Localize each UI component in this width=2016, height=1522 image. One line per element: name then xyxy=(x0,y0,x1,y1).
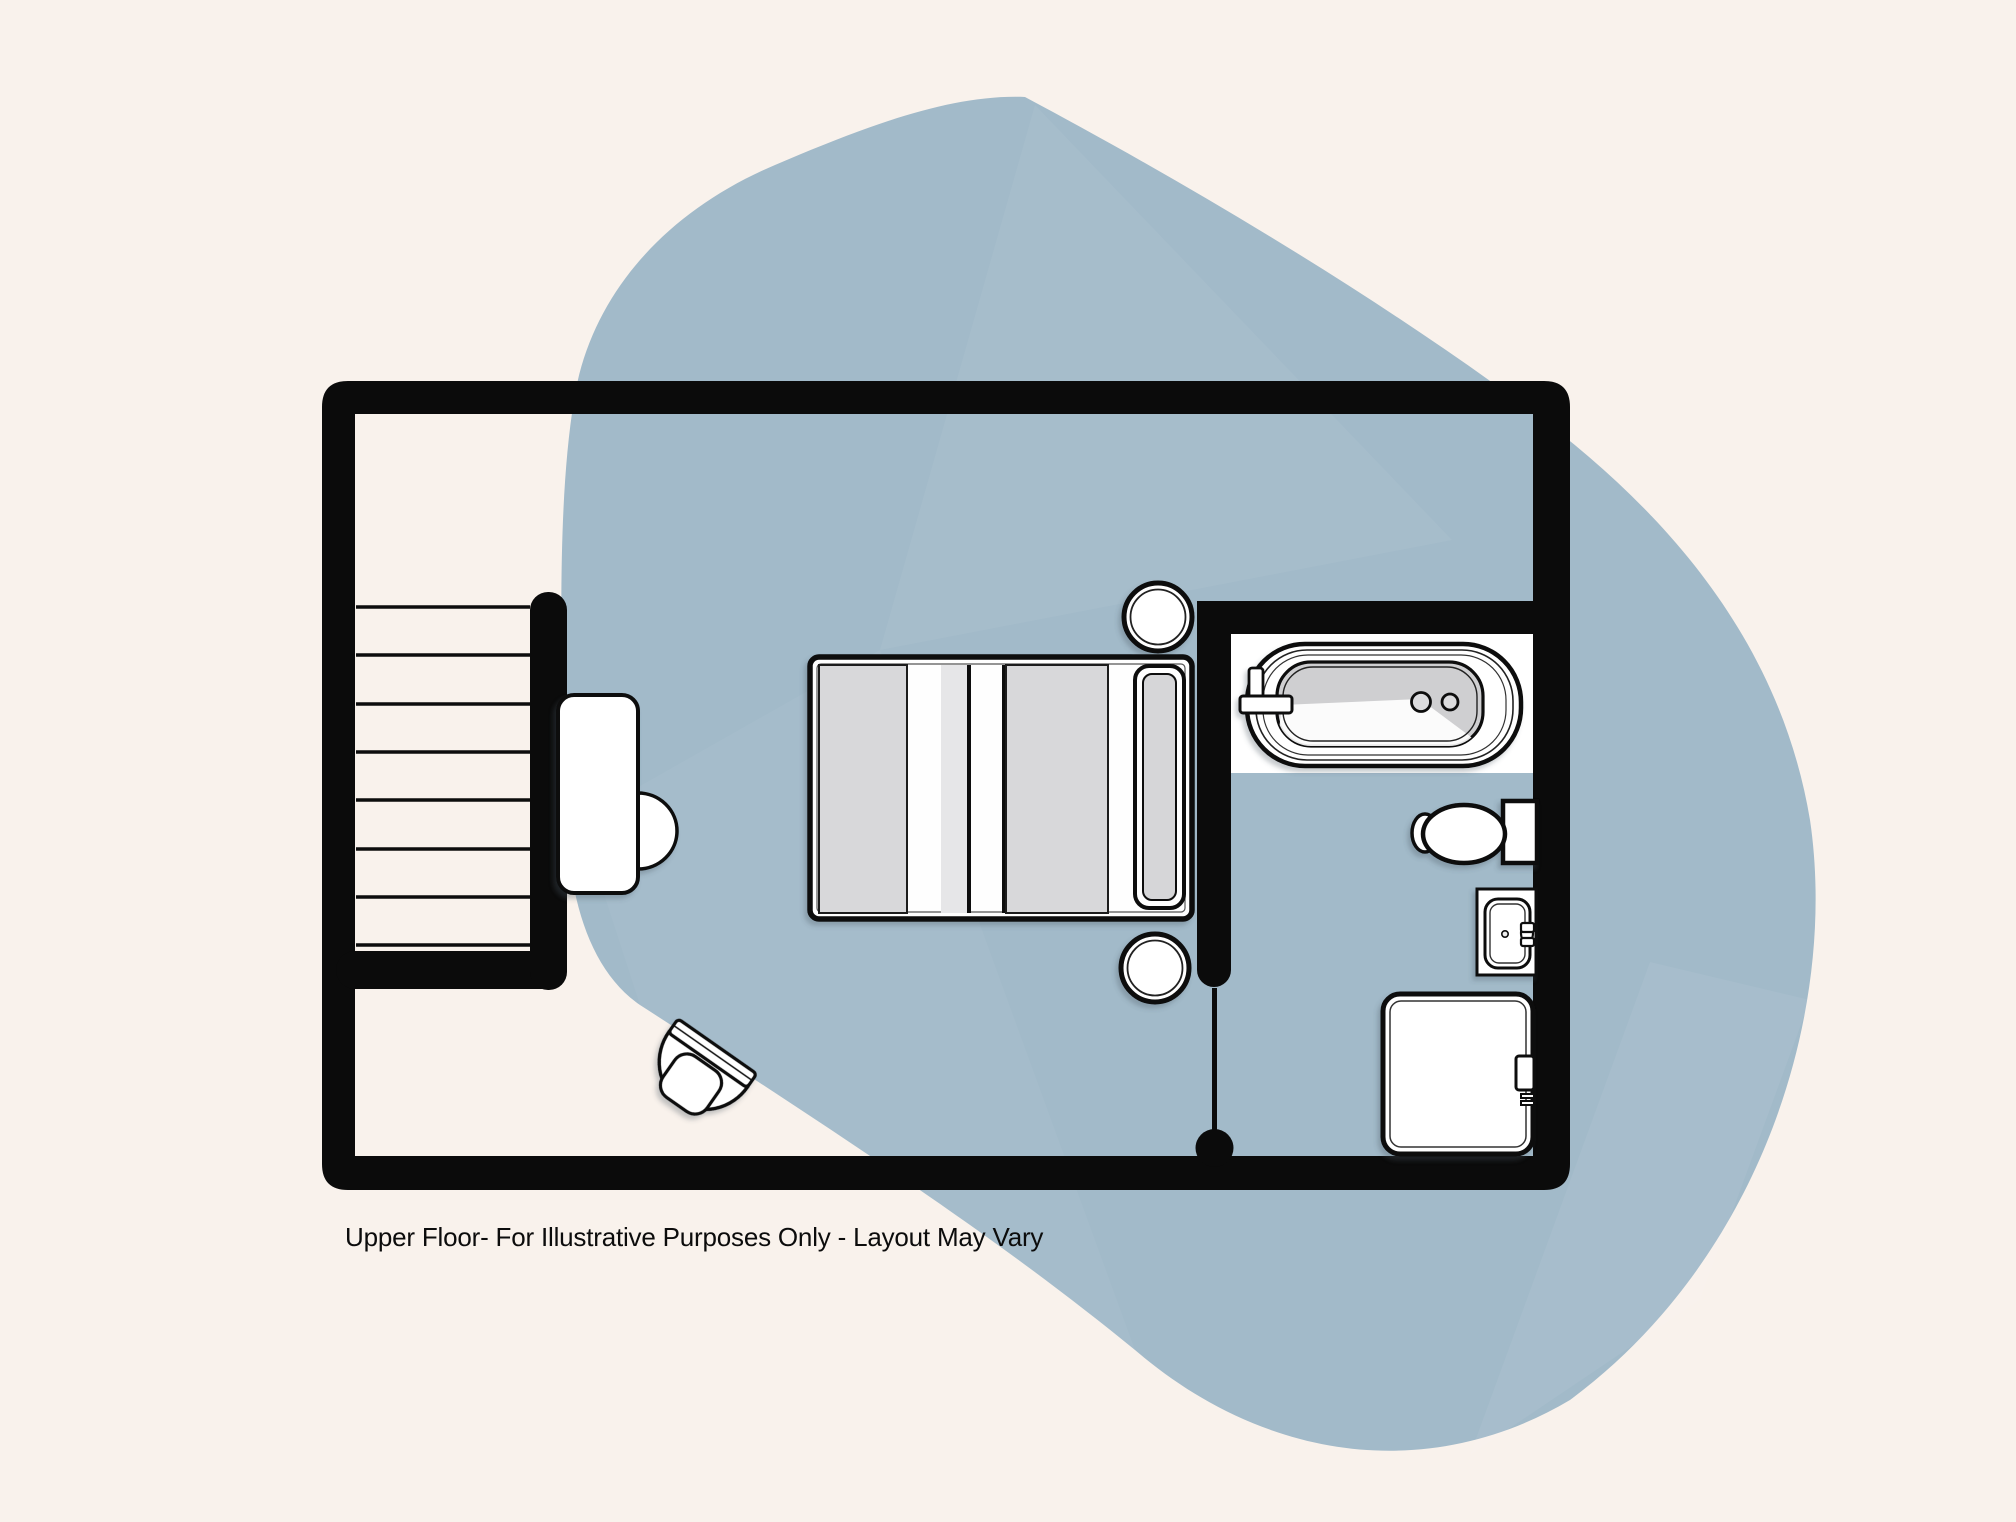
floorplan-drawing xyxy=(0,0,2016,1522)
nightstand-top xyxy=(1124,583,1192,651)
toilet-tank xyxy=(1503,801,1537,863)
bed-duvet-right xyxy=(1006,665,1108,913)
sink-drain xyxy=(1502,931,1508,937)
bathtub-drain xyxy=(1412,693,1431,712)
bathroom-top-wall xyxy=(1197,601,1537,634)
nightstand-bottom xyxy=(1121,934,1189,1002)
bathtub xyxy=(1240,644,1521,766)
toilet-bowl xyxy=(1423,805,1505,863)
shower-valve xyxy=(1516,1056,1534,1090)
bed-sheet-band xyxy=(941,665,969,913)
staircase xyxy=(356,607,530,945)
shower xyxy=(1383,994,1534,1154)
double-bed xyxy=(810,657,1192,919)
desk xyxy=(558,695,638,893)
bathroom-door-line xyxy=(1212,988,1217,1140)
bathroom-side-wall xyxy=(1197,601,1231,987)
floorplan-page: Upper Floor- For Illustrative Purposes O… xyxy=(0,0,2016,1522)
plan-caption: Upper Floor- For Illustrative Purposes O… xyxy=(345,1221,1043,1253)
sink xyxy=(1477,889,1536,975)
bathroom-door-knob xyxy=(1196,1129,1234,1167)
bed-pillow xyxy=(1143,674,1176,900)
bed-duvet-left xyxy=(819,665,907,913)
